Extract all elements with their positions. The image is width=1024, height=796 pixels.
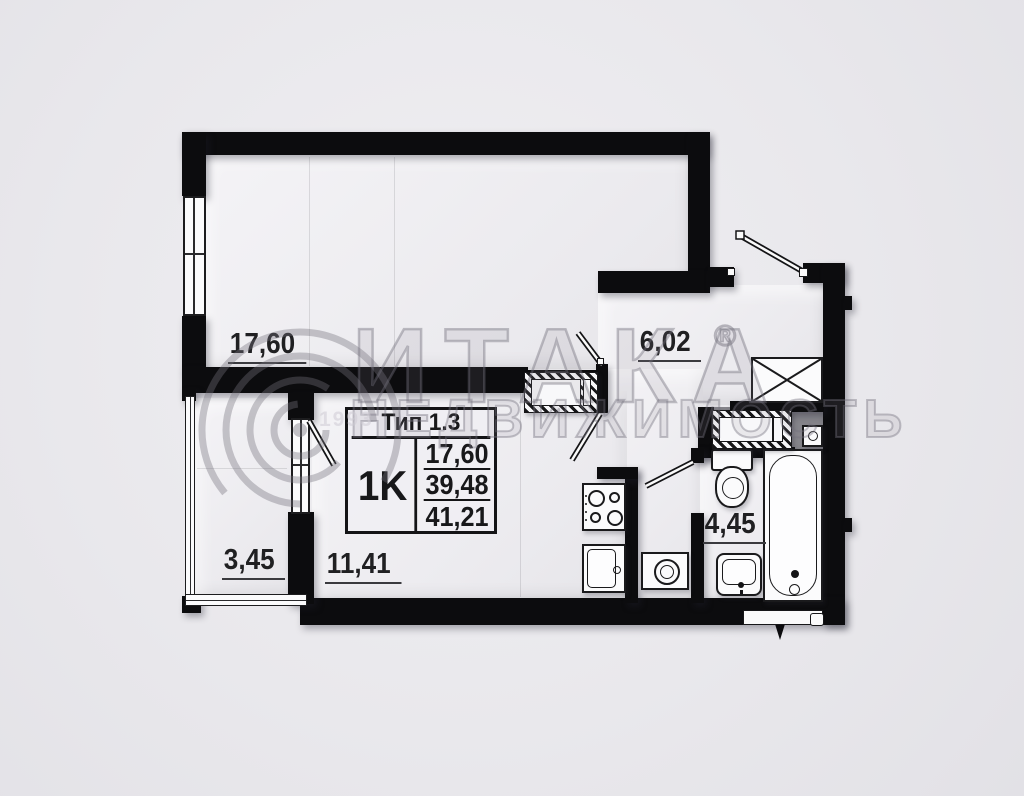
door-stop (597, 358, 604, 365)
wall-kitchen-nook (625, 467, 638, 603)
wall-bath-left-upper (691, 448, 704, 463)
boiler-icon (802, 425, 823, 447)
bathtub-icon (763, 449, 823, 602)
hallway-closet (524, 372, 598, 413)
washing-machine-icon (641, 552, 689, 590)
wall-right (823, 263, 845, 625)
balcony-area-label: 3,45 (222, 544, 285, 580)
wall-kitchen-nook-cap (597, 467, 638, 479)
floor-plan: 17,60 6,02 3,45 11,41 4,45 Тип 1.3 1K 17… (0, 0, 1024, 796)
shaft-unit (712, 410, 792, 449)
wall-left-mid (182, 316, 206, 372)
toilet-bowl-icon (715, 466, 749, 508)
door-hinge (799, 268, 808, 277)
bathroom-sink-icon (716, 553, 762, 596)
wall-living-bottom (182, 367, 528, 393)
balcony-glazing-bottom (185, 594, 307, 606)
wall-nub-right-1 (845, 296, 852, 310)
stove-icon (582, 483, 626, 531)
door-stop (727, 268, 735, 276)
unit-label: 1K (351, 439, 417, 533)
guide-line (394, 157, 395, 366)
guide-line (520, 393, 521, 597)
entrance-door-leaf (736, 231, 804, 272)
wall-hall-top-left (598, 271, 710, 293)
hallway-area-label: 6,02 (638, 326, 701, 362)
area-total-value: 41,21 (424, 501, 491, 533)
wall-nub-right-2 (845, 518, 852, 532)
wardrobe-x (751, 357, 823, 403)
guide-line (197, 468, 287, 469)
area-value: 39,48 (424, 470, 491, 501)
wall-balcony-bottom (288, 512, 314, 604)
kitchen-area-label: 11,41 (325, 548, 401, 584)
wall-living-right (688, 132, 710, 284)
wall-top (182, 132, 708, 155)
kitchen-sink-icon (582, 544, 626, 593)
type-label: Тип 1.3 (352, 410, 491, 439)
apartment-info-table: Тип 1.3 1K 17,60 39,48 41,21 (345, 407, 497, 534)
guide-line (309, 157, 310, 366)
living-window (183, 196, 206, 316)
area-living-value: 17,60 (424, 439, 491, 470)
balcony-glazing-left (185, 396, 195, 602)
bathroom-area-label: 4,45 (703, 508, 766, 544)
living-area-label: 17,60 (228, 328, 306, 364)
vent-square (810, 613, 824, 626)
wall-left-upper (182, 132, 206, 196)
wall-balcony-top (288, 393, 314, 420)
balcony-door-window (291, 418, 310, 514)
